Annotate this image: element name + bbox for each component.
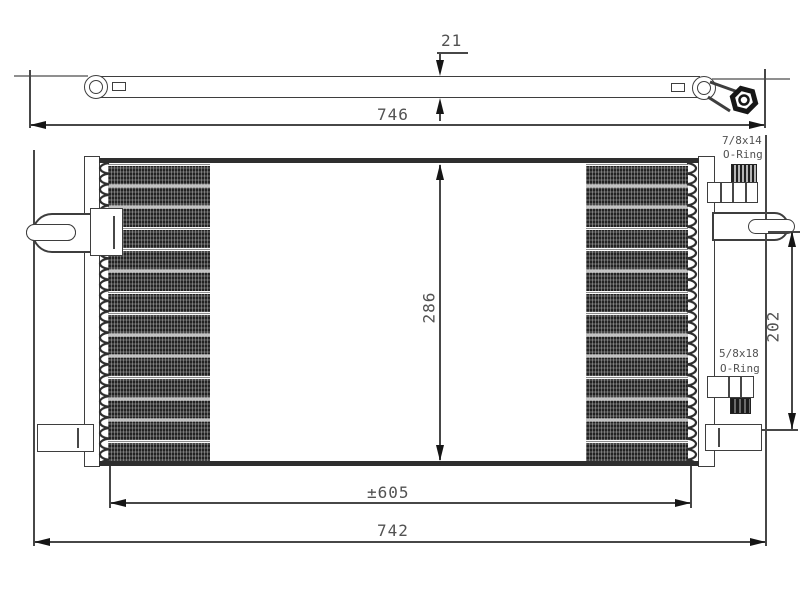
upper-fitting-thread [731, 164, 757, 183]
lower-fitting-thread-label: 5/8x18 [719, 347, 759, 360]
left-fork-pad-tick [113, 216, 115, 249]
drawing-canvas: 21 746 7/8x14 O-Ring [0, 0, 800, 600]
dim-286-arrow-bottom [436, 445, 444, 461]
bottom-right-bracket [705, 424, 762, 451]
upper-block-div1 [720, 183, 722, 202]
upper-block-div3 [745, 183, 747, 202]
fin-serration-right [686, 163, 704, 461]
dim-742-ext-left [33, 150, 35, 546]
dim-746-arrow-right [749, 121, 765, 129]
bottom-right-bracket-tick [718, 428, 720, 447]
upper-fitting-thread-label: 7/8x14 [722, 134, 762, 147]
dim-depth-label: 21 [441, 31, 462, 50]
bottom-left-bracket [37, 424, 94, 452]
side-view-right-port [671, 83, 685, 92]
bottom-left-bracket-tick [77, 428, 79, 448]
dim-746-label: 746 [377, 105, 409, 124]
side-view-hex-fitting [696, 70, 776, 125]
dim-742-arrow-right [750, 538, 766, 546]
upper-fitting-seal-label: O-Ring [723, 148, 763, 161]
left-fork-slot-top [26, 224, 76, 241]
side-view-tube-body [99, 76, 700, 98]
side-view-left-port [112, 82, 126, 91]
dim-746-ext-left [29, 70, 31, 128]
dim-202-label: 202 [764, 302, 783, 352]
dim-742-line [33, 541, 766, 543]
side-view-left-boss-inner [89, 80, 103, 94]
lower-fitting-seal-label: O-Ring [720, 362, 760, 375]
core-bottom-bar [99, 461, 699, 466]
dim-286-arrow-top [436, 164, 444, 180]
dim-depth-arrow-bottom [436, 98, 444, 114]
dim-202-line [791, 231, 793, 429]
lower-block-div1 [728, 377, 730, 397]
upper-block-div2 [732, 183, 734, 202]
fin-block-right [586, 163, 688, 461]
dim-742-arrow-left [34, 538, 50, 546]
lower-fitting-stub [730, 398, 751, 414]
dim-202-arrow-top [788, 231, 796, 247]
dim-286-line [439, 165, 441, 460]
dim-746-arrow-left [30, 121, 46, 129]
lower-block-div2 [740, 377, 742, 397]
dim-742-label: 742 [377, 521, 409, 540]
lower-fitting-block [707, 376, 754, 398]
dim-depth-arrow-top [436, 60, 444, 76]
left-fork-pad [90, 208, 123, 256]
dim-202-arrow-bottom [788, 413, 796, 429]
dim-605-arrow-left [110, 499, 126, 507]
dim-depth-leader-bottom [439, 113, 441, 121]
dim-605-label: ±605 [367, 483, 410, 502]
side-view-rod-left [14, 75, 88, 77]
dim-605-line [109, 502, 691, 504]
dim-286-label: 286 [420, 283, 439, 333]
dim-746-line [30, 124, 765, 126]
dim-605-arrow-right [675, 499, 691, 507]
dim-depth-shelf [437, 52, 468, 54]
fin-block-left [108, 163, 210, 461]
dim-202-ref-bottom [762, 429, 798, 431]
